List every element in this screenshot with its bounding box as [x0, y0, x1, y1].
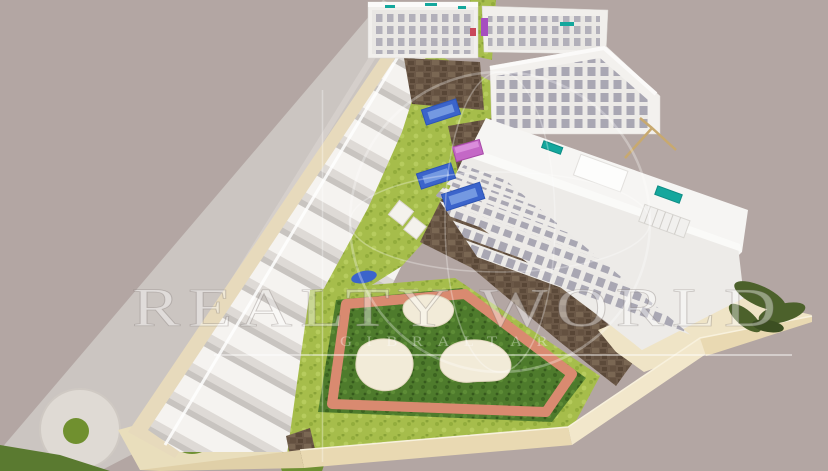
- purple-slide: [481, 18, 488, 36]
- render-canvas: REALTY WORLD GIBRALTAR: [0, 0, 828, 471]
- site-render-image: REALTY WORLD GIBRALTAR: [0, 0, 828, 471]
- apartment-block-top-left: [368, 2, 478, 58]
- apartment-block-top-right-rear: [481, 6, 608, 54]
- sand-area: [356, 339, 413, 391]
- red-roof-element: [470, 28, 476, 36]
